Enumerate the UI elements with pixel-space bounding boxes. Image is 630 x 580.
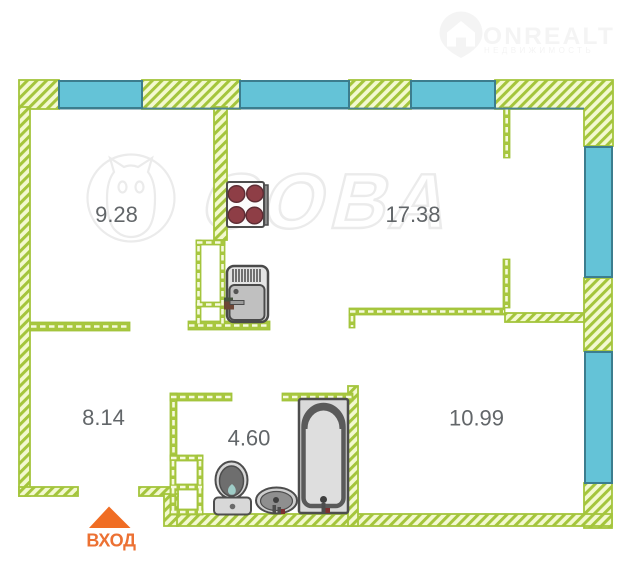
svg-text:НЕДВИЖИМОСТЬ: НЕДВИЖИМОСТЬ <box>484 46 594 55</box>
svg-text:4.60: 4.60 <box>228 426 271 451</box>
svg-text:ВХОД: ВХОД <box>86 531 136 551</box>
svg-text:17.38: 17.38 <box>385 202 440 227</box>
svg-text:10.99: 10.99 <box>449 406 504 431</box>
svg-text:8.14: 8.14 <box>82 405 125 430</box>
svg-text:9.28: 9.28 <box>95 202 138 227</box>
